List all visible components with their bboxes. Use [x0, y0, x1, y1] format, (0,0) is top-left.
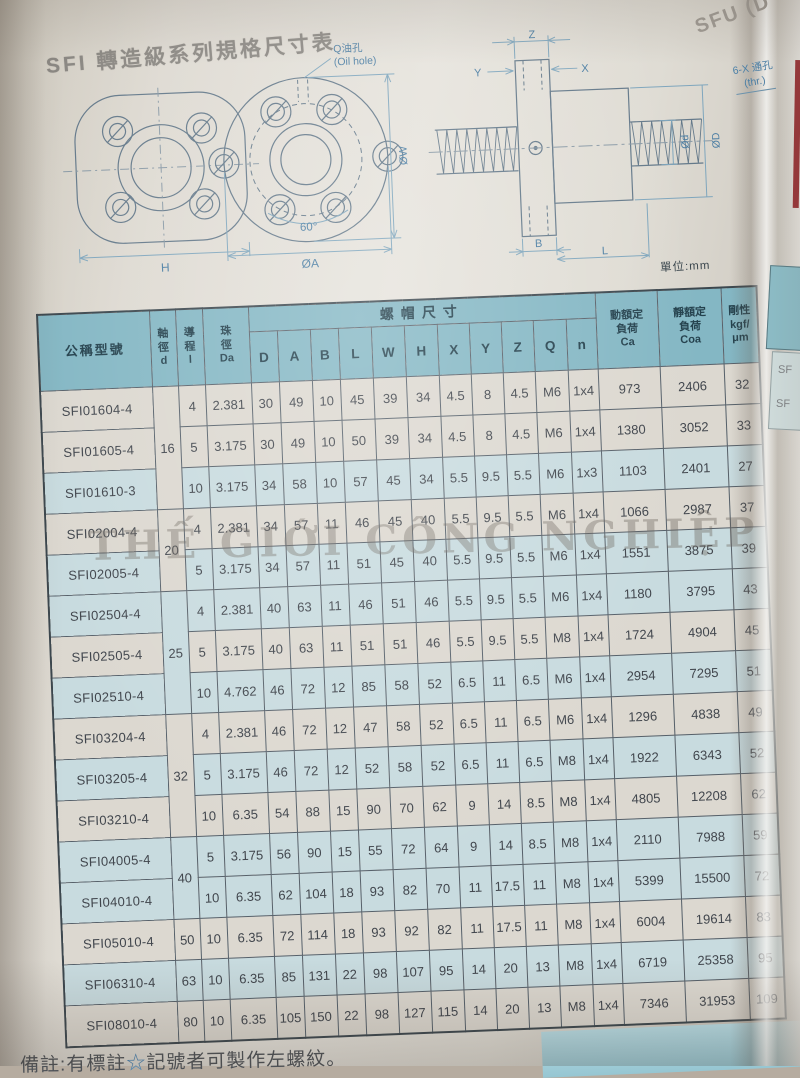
nut-dim-cell: 49	[281, 421, 316, 463]
oil-hole-label-en: (Oil hole)	[334, 55, 377, 69]
nut-dim-cell: 6.5	[514, 658, 548, 700]
nut-dim-cell: 1x4	[584, 779, 616, 821]
nut-dim-cell: M8	[559, 985, 594, 1028]
footnote-suffix: 記號者可製作左螺紋。	[146, 1049, 346, 1074]
ball-dia-cell: 6.35	[228, 956, 276, 999]
nut-dim-cell: M6	[548, 698, 583, 740]
nut-dim-cell: 6.5	[452, 702, 486, 744]
nut-dim-cell: M6	[540, 493, 575, 535]
static-load-cell: 3875	[666, 528, 732, 572]
nut-dim-cell: 70	[426, 867, 461, 909]
nut-dim-cell: 6.5	[450, 661, 484, 703]
dynamic-load-cell: 1066	[603, 489, 667, 532]
nut-dim-cell: 18	[332, 871, 362, 913]
header-stiffness: 剛性 kgf/ μm	[721, 286, 760, 364]
nut-dim-cell: 34	[409, 457, 444, 499]
nut-col-header: Z	[501, 321, 535, 373]
nut-col-header: W	[371, 326, 406, 378]
ball-dia-cell: 2.381	[210, 506, 258, 549]
nut-dim-cell: 127	[398, 991, 433, 1034]
nut-dim-cell: 8	[471, 373, 505, 415]
nut-dim-cell: 63	[287, 585, 322, 627]
next-page-hole-label: 6-X 通孔 (thr.)	[732, 59, 777, 95]
nut-dim-cell: 46	[414, 580, 449, 622]
ball-dia-cell: 2.381	[218, 711, 266, 754]
nut-dim-cell: 40	[411, 498, 446, 540]
nut-dim-cell: 5.5	[513, 617, 547, 659]
nut-dim-cell: 46	[348, 583, 383, 625]
nut-dim-cell: 63	[289, 626, 324, 668]
next-page-row-fragment: SF	[776, 398, 790, 410]
nut-dim-cell: 34	[254, 464, 284, 506]
footnote-prefix: 備註:有標註	[20, 1053, 127, 1076]
nut-dim-cell: 9.5	[481, 619, 515, 661]
nut-dim-cell: 64	[424, 826, 459, 868]
nut-dim-cell: 20	[494, 946, 528, 988]
nut-dim-cell: 46	[345, 501, 380, 543]
nut-dim-cell: 70	[389, 786, 424, 828]
nut-dim-cell: 82	[427, 908, 462, 950]
stiffness-cell: 62	[740, 772, 778, 814]
nut-dim-cell: 34	[258, 546, 288, 588]
model-cell: SFI01605-4☆	[42, 428, 156, 473]
nut-dim-cell: 13	[527, 986, 561, 1029]
nut-dim-cell: 1x4	[573, 492, 605, 534]
shaft-dia-cell: 20	[157, 509, 186, 592]
nut-dim-cell: 11	[486, 742, 520, 784]
nut-assembly-drawing: Z Y X Ød ØD B L	[424, 21, 726, 267]
lead-cell: 10	[201, 958, 230, 1000]
nut-dim-cell: M8	[554, 862, 589, 904]
nut-col-header: H	[404, 324, 439, 376]
nut-dim-cell: 6.5	[516, 699, 550, 741]
nut-dim-cell: 85	[351, 665, 386, 707]
nut-dim-cell: 49	[279, 380, 314, 422]
dim-oa-label: ØA	[301, 256, 319, 271]
dynamic-load-cell: 1380	[599, 407, 663, 450]
stiffness-cell: 83	[745, 895, 783, 937]
nut-dim-cell: 55	[358, 829, 393, 871]
model-cell: SFI03205-4☆	[55, 756, 169, 801]
flange-side-view-drawing: H	[60, 84, 264, 279]
nut-dim-cell: 57	[343, 460, 378, 502]
nut-dim-cell: 56	[269, 832, 299, 874]
nut-dim-cell: 58	[388, 745, 423, 787]
nut-dim-cell: 11	[318, 543, 348, 585]
dim-od-small-label: Ød	[679, 134, 692, 149]
static-load-cell: 31953	[684, 978, 750, 1022]
nut-dim-cell: 20	[495, 987, 529, 1030]
nut-dim-cell: 58	[386, 704, 421, 746]
nut-dim-cell: 72	[294, 749, 329, 791]
lead-cell: 10	[181, 467, 210, 509]
spec-table: 公稱型號 軸 徑 d 導 程 l 珠 徑 Da 螺帽尺寸 動額定 負荷 Ca 靜…	[36, 285, 787, 1048]
ball-dia-cell: 3.175	[207, 424, 255, 467]
nut-dim-cell: 115	[430, 990, 465, 1033]
nut-dim-cell: 82	[393, 868, 428, 910]
nut-dim-cell: 90	[356, 788, 391, 830]
stiffness-cell: 59	[742, 813, 780, 855]
header-ball-dia: 珠 徑 Da	[202, 306, 251, 384]
nut-dim-cell: 46	[416, 621, 451, 663]
nut-dim-cell: 104	[299, 872, 334, 914]
model-cell: SFI08010-4	[65, 1001, 179, 1047]
next-page-row-fragment: SF	[778, 364, 792, 376]
static-load-cell: 15500	[679, 856, 745, 900]
nut-dim-cell: 52	[417, 662, 452, 704]
model-cell: SFI04005-4☆	[58, 838, 172, 883]
nut-col-header: Y	[469, 322, 503, 374]
ball-dia-cell: 3.175	[220, 752, 268, 795]
dim-60-label: 60°	[300, 221, 318, 234]
lead-cell: 5	[188, 631, 217, 673]
nut-dim-cell: 11	[459, 866, 493, 908]
stiffness-cell: 33	[725, 403, 763, 445]
static-load-cell: 2987	[665, 487, 731, 531]
nut-dim-cell: 45	[376, 459, 411, 501]
nut-dim-cell: 52	[421, 744, 456, 786]
header-shaft-dia: 軸 徑 d	[149, 309, 178, 386]
nut-dim-cell: 1x4	[592, 984, 624, 1027]
nut-dim-cell: 14	[489, 823, 523, 865]
stiffness-cell: 45	[734, 608, 772, 650]
lead-cell: 5	[185, 549, 214, 591]
nut-dim-cell: 39	[373, 377, 408, 419]
dynamic-load-cell: 5399	[617, 858, 681, 901]
nut-dim-cell: 1x4	[589, 902, 621, 944]
dynamic-load-cell: 1180	[606, 571, 670, 614]
nut-dim-cell: 4.5	[439, 374, 473, 416]
stiffness-cell: 39	[730, 526, 768, 568]
nut-dim-cell: 11	[522, 863, 556, 905]
static-load-cell: 6343	[675, 733, 741, 777]
nut-dim-cell: 22	[337, 994, 367, 1037]
nut-dim-cell: 5.5	[449, 620, 483, 662]
nut-dim-cell: 40	[261, 628, 291, 670]
dim-h-label: H	[161, 260, 170, 274]
nut-dim-cell: 114	[300, 913, 335, 955]
stiffness-cell: 95	[747, 936, 785, 978]
nut-dim-cell: M8	[550, 739, 585, 781]
nut-dim-cell: 34	[407, 416, 442, 458]
nut-dim-cell: 10	[312, 379, 342, 421]
model-cell: SFI03210-4☆	[57, 797, 171, 842]
nut-dim-cell: 40	[412, 539, 447, 581]
nut-dim-cell: 46	[262, 669, 292, 711]
shaft-dia-cell: 63	[175, 959, 203, 1001]
model-cell: SFI01604-4	[40, 387, 154, 432]
ball-dia-cell: 2.381	[205, 383, 253, 426]
nut-dim-cell: 85	[274, 955, 304, 997]
dim-x-label: X	[581, 63, 589, 75]
nut-dim-cell: M6	[543, 575, 578, 617]
nut-dim-cell: 11	[484, 701, 518, 743]
nut-col-header: L	[338, 327, 373, 379]
nut-dim-cell: 10	[315, 461, 345, 503]
nut-dim-cell: 50	[342, 419, 377, 461]
nut-dim-cell: 6.5	[518, 740, 552, 782]
model-cell: SFI02505-4☆	[50, 633, 164, 678]
lead-cell: 10	[190, 672, 219, 714]
lead-cell: 4	[183, 508, 212, 550]
static-load-cell: 25358	[683, 937, 749, 981]
dynamic-load-cell: 6004	[619, 899, 683, 942]
nut-dim-cell: 98	[363, 952, 398, 994]
nut-dim-cell: 45	[379, 541, 414, 583]
dynamic-load-cell: 973	[598, 367, 662, 410]
nut-dim-cell: 9.5	[477, 537, 511, 579]
nut-dim-cell: 12	[325, 707, 355, 749]
footnote: 備註:有標註☆記號者可製作左螺紋。	[20, 1044, 347, 1078]
header-ca: 動額定 負荷 Ca	[595, 290, 660, 369]
shaft-dia-cell: 50	[173, 918, 201, 960]
dynamic-load-cell: 1922	[613, 735, 677, 778]
nut-dim-cell: 11	[320, 584, 350, 626]
nut-dim-cell: 45	[340, 378, 375, 420]
next-page-header-edge	[766, 265, 800, 351]
nut-col-header: B	[310, 328, 340, 380]
technical-drawings: H Q油孔 (Oil hole) ØW 6	[56, 20, 725, 282]
ball-dia-cell: 3.175	[212, 547, 260, 590]
nut-dim-cell: 1x4	[587, 861, 619, 903]
stiffness-cell: 37	[729, 485, 767, 527]
nut-dim-cell: 34	[406, 375, 441, 417]
nut-dim-cell: 30	[251, 382, 281, 424]
lead-cell: 5	[193, 753, 222, 795]
static-load-cell: 19614	[681, 897, 747, 941]
nut-dim-cell: 1x4	[579, 656, 611, 698]
nut-dim-cell: 150	[304, 995, 339, 1038]
nut-dim-cell: 5.5	[509, 535, 543, 577]
static-load-cell: 3052	[661, 405, 727, 449]
lead-cell: 10	[199, 917, 228, 959]
nut-col-header: Q	[533, 319, 568, 371]
nut-dim-cell: 51	[381, 582, 416, 624]
oil-hole-label-cn: Q油孔	[333, 41, 363, 55]
nut-dim-cell: 11	[322, 625, 352, 667]
nut-dim-cell: 11	[460, 907, 494, 949]
nut-dim-cell: 52	[419, 703, 454, 745]
model-cell: SFI04010-4☆	[60, 879, 174, 924]
nut-dim-cell: 1x4	[591, 943, 623, 985]
nut-dim-cell: 9.5	[476, 496, 510, 538]
dynamic-load-cell: 1724	[608, 612, 672, 655]
ball-dia-cell: 6.35	[226, 916, 274, 959]
dim-y-label: Y	[474, 67, 482, 79]
nut-dim-cell: 1x4	[586, 820, 618, 862]
dynamic-load-cell: 1551	[604, 530, 668, 573]
nut-dim-cell: 98	[365, 993, 400, 1036]
nut-dim-cell: 131	[302, 954, 337, 996]
nut-dim-cell: 5.5	[442, 456, 476, 498]
nut-dim-cell: 88	[295, 790, 330, 832]
static-load-cell: 3795	[668, 569, 734, 613]
dim-b-label: B	[535, 238, 543, 250]
nut-col-header: D	[249, 331, 279, 383]
stiffness-cell: 43	[732, 567, 770, 609]
ball-dia-cell: 6.35	[221, 793, 269, 836]
nut-dim-cell: 51	[383, 623, 418, 665]
nut-dim-cell: M8	[558, 944, 593, 986]
dynamic-load-cell: 2110	[616, 817, 680, 860]
header-coa: 靜額定 負荷 Coa	[657, 288, 724, 367]
nut-dim-cell: 5.5	[444, 497, 478, 539]
nut-dim-cell: 14	[487, 782, 521, 824]
model-cell: SFI02504-4	[48, 592, 162, 637]
nut-dim-cell: 8.5	[521, 822, 555, 864]
nut-dim-cell: 46	[266, 751, 296, 793]
nut-dim-cell: 58	[282, 462, 317, 504]
lead-cell: 10	[198, 876, 227, 918]
nut-dim-cell: 93	[360, 870, 395, 912]
nut-dim-cell: 93	[361, 911, 396, 953]
nut-dim-cell: 1x4	[569, 410, 601, 452]
nut-dim-cell: 8.5	[519, 781, 553, 823]
nut-dim-cell: 11	[482, 660, 516, 702]
nut-dim-cell: 1x3	[571, 451, 603, 493]
lead-cell: 5	[196, 835, 225, 877]
nut-dim-cell: 5.5	[445, 538, 479, 580]
nut-dim-cell: M8	[545, 616, 580, 658]
nut-dim-cell: 1x4	[574, 533, 606, 575]
nut-dim-cell: 72	[272, 914, 302, 956]
nut-dim-cell: 9.5	[474, 455, 508, 497]
nut-dim-cell: 4.5	[503, 372, 537, 414]
nut-dim-cell: 52	[355, 747, 390, 789]
dynamic-load-cell: 1296	[611, 694, 675, 737]
nut-dim-cell: 72	[290, 667, 325, 709]
nut-dim-cell: 18	[333, 912, 363, 954]
nut-dim-cell: 5.5	[511, 576, 545, 618]
stiffness-cell: 72	[743, 854, 781, 896]
nut-dim-cell: 45	[378, 500, 413, 542]
ball-dia-cell: 3.175	[215, 629, 263, 672]
model-cell: SFI05010-4☆	[61, 919, 175, 964]
nut-dim-cell: 95	[429, 949, 464, 991]
nut-dim-cell: 4.5	[440, 415, 474, 457]
nut-dim-cell: 12	[323, 666, 353, 708]
nut-dim-cell: 51	[350, 624, 385, 666]
dim-l-label: L	[602, 245, 609, 257]
nut-dim-cell: 11	[524, 904, 558, 946]
nut-dim-cell: 13	[526, 945, 560, 987]
nut-dim-cell: 57	[284, 503, 319, 545]
model-cell: SFI01610-3	[43, 469, 157, 514]
unit-label: 單位:mm	[660, 257, 711, 276]
nut-dim-cell: 54	[267, 791, 297, 833]
lead-cell: 10	[194, 794, 223, 836]
nut-dim-cell: 1x4	[581, 697, 613, 739]
spec-table-body: SFI01604-41642.3813049104539344.584.5M61…	[40, 362, 786, 1047]
nut-dim-cell: M8	[556, 903, 591, 945]
nut-dim-cell: 6.5	[454, 743, 488, 785]
spec-table-container: 公稱型號 軸 徑 d 導 程 l 珠 徑 Da 螺帽尺寸 動額定 負荷 Ca 靜…	[36, 285, 787, 1048]
nut-col-header: A	[277, 330, 312, 382]
stiffness-cell: 52	[738, 731, 776, 773]
nut-dim-cell: 1x4	[568, 369, 600, 411]
nut-dim-cell: M6	[538, 452, 573, 494]
nut-dim-cell: 1x4	[576, 574, 608, 616]
lead-cell: 5	[180, 426, 209, 468]
nut-dim-cell: 8	[472, 414, 506, 456]
ball-dia-cell: 2.381	[213, 588, 261, 631]
nut-col-header: X	[437, 323, 471, 375]
footnote-star-icon: ☆	[126, 1053, 146, 1074]
nut-dim-cell: 9.5	[479, 578, 513, 620]
nut-dim-cell: 40	[259, 587, 289, 629]
shaft-dia-cell: 80	[177, 1000, 205, 1043]
nut-dim-cell: 72	[391, 827, 426, 869]
page-gutter-shadow	[0, 0, 46, 1066]
nut-dim-cell: 17.5	[492, 905, 526, 947]
lead-cell: 4	[191, 713, 220, 755]
dim-z-label: Z	[528, 29, 535, 41]
nut-dim-cell: 105	[276, 996, 306, 1039]
nut-dim-cell: 47	[353, 706, 388, 748]
dynamic-load-cell: 2954	[609, 653, 673, 696]
model-cell: SFI03204-4	[53, 715, 167, 760]
nut-dim-cell: M8	[551, 780, 586, 822]
stiffness-cell: 109	[748, 977, 786, 1020]
nut-dim-cell: 5.5	[508, 494, 542, 536]
nut-dim-cell: 39	[374, 418, 409, 460]
nut-dim-cell: 17.5	[491, 864, 525, 906]
nut-dim-cell: 107	[396, 950, 431, 992]
ball-dia-cell: 6.35	[230, 997, 278, 1040]
nut-dim-cell: 72	[292, 708, 327, 750]
nut-dim-cell: 1x4	[582, 738, 614, 780]
nut-dim-cell: 9	[455, 784, 489, 826]
ball-dia-cell: 3.175	[208, 465, 256, 508]
dynamic-load-cell: 1103	[601, 448, 665, 491]
nut-dim-cell: 62	[271, 873, 301, 915]
static-load-cell: 7295	[671, 651, 737, 695]
ball-dia-cell: 6.35	[225, 875, 273, 918]
nut-dim-cell: 1x4	[578, 615, 610, 657]
nut-dim-cell: 46	[264, 710, 294, 752]
shaft-dia-cell: 40	[170, 836, 199, 919]
nut-dim-cell: 15	[330, 830, 360, 872]
nut-dim-cell: 5.5	[447, 579, 481, 621]
nut-col-header: n	[566, 318, 598, 370]
nut-dim-cell: 51	[346, 542, 381, 584]
flange-front-view-drawing: Q油孔 (Oil hole) ØW 60° ØA	[204, 39, 414, 274]
nut-dim-cell: M6	[535, 370, 570, 412]
static-load-cell: 2406	[660, 364, 726, 408]
nut-dim-cell: M6	[536, 411, 571, 453]
stiffness-cell: 51	[735, 649, 773, 691]
nut-dim-cell: 15	[328, 789, 358, 831]
lead-cell: 4	[178, 385, 207, 427]
stiffness-cell: 49	[737, 690, 775, 732]
nut-dim-cell: 9	[457, 825, 491, 867]
model-cell: SFI02004-4	[45, 510, 159, 555]
static-load-cell: 7988	[678, 815, 744, 859]
stiffness-cell: 32	[724, 362, 762, 404]
static-load-cell: 12208	[676, 774, 742, 818]
nut-dim-cell: 14	[463, 989, 497, 1032]
header-model: 公稱型號	[37, 310, 152, 391]
static-load-cell: 4904	[670, 610, 736, 654]
lead-cell: 10	[203, 999, 232, 1042]
model-cell: SFI02510-4	[52, 674, 166, 719]
model-cell: SFI06310-4	[63, 960, 177, 1005]
nut-dim-cell: 57	[285, 544, 320, 586]
nut-dim-cell: 11	[317, 502, 347, 544]
ball-dia-cell: 4.762	[216, 670, 264, 713]
nut-dim-cell: 58	[384, 663, 419, 705]
stiffness-cell: 27	[727, 444, 765, 486]
